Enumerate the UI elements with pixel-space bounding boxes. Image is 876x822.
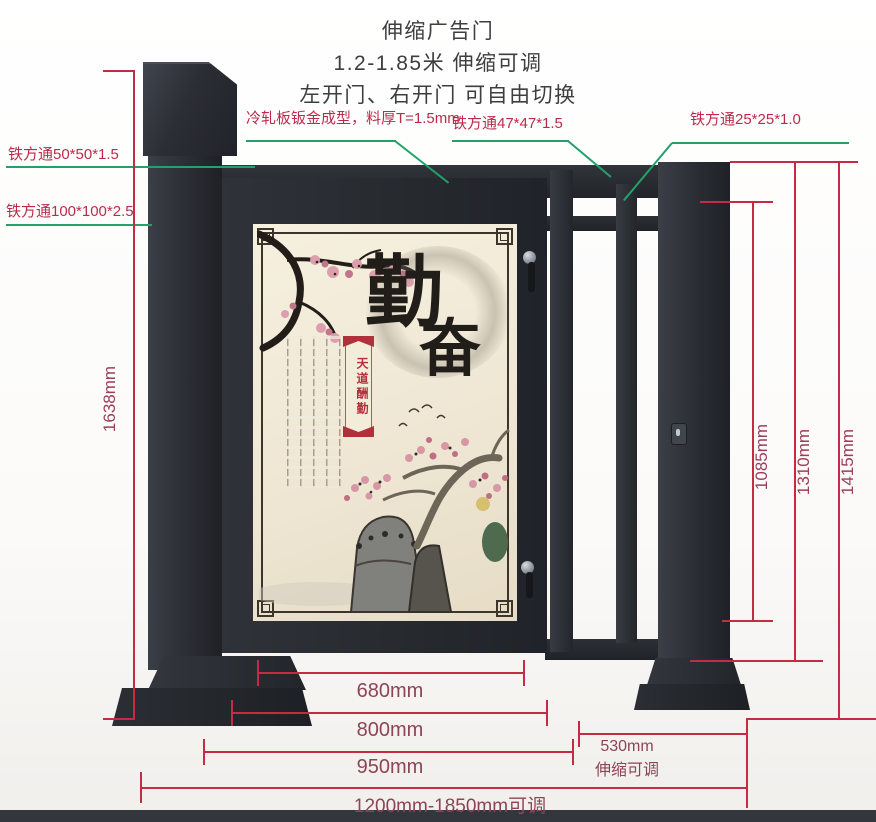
dim-1310-line xyxy=(794,161,796,660)
leader-tube-47-underline xyxy=(452,140,569,142)
dim-label-total-height: 1415mm xyxy=(838,422,858,502)
right-post xyxy=(658,162,730,664)
dim-label-extend-value: 530mm xyxy=(572,738,682,756)
dim-1310-bottom-tick xyxy=(690,660,823,662)
telescopic-bar-2 xyxy=(616,184,637,643)
leader-tube-25-underline xyxy=(672,142,849,144)
poster-corner-ornament-tr xyxy=(496,228,513,245)
post-keyhole xyxy=(671,423,687,445)
dim-800-line xyxy=(231,712,546,714)
subtitle-size-range: 1.2-1.85米 伸缩可调 xyxy=(0,47,876,77)
ink-painting-illustration xyxy=(259,396,511,614)
dim-label-poster-width: 680mm xyxy=(330,680,450,703)
subtitle-door-direction: 左开门、右开门 可自由切换 xyxy=(0,79,876,109)
dim-total-right-tick xyxy=(746,720,748,808)
dim-label-extend-note: 伸缩可调 xyxy=(572,756,682,780)
dim-950-line xyxy=(203,751,572,753)
dim-800-right-tick xyxy=(546,700,548,726)
dim-label-door-section-width: 950mm xyxy=(330,756,450,779)
dim-label-inner-height: 1085mm xyxy=(752,417,772,497)
left-post xyxy=(148,148,222,670)
calligraphy-fen: 奋 xyxy=(419,318,481,380)
right-post-foot-upper xyxy=(646,658,742,688)
gate-product-diagram: 伸缩广告门 1.2-1.85米 伸缩可调 左开门、右开门 可自由切换 xyxy=(0,0,876,822)
banner-top-cap xyxy=(343,336,374,347)
advert-poster: 勤 奋 天道酬勤 xyxy=(253,224,517,621)
door-lock-stem-bottom xyxy=(526,572,533,598)
advert-door-panel: 勤 奋 天道酬勤 xyxy=(222,178,547,653)
dim-1085-bottom-tick xyxy=(722,620,773,622)
telescopic-bar-1 xyxy=(550,170,573,652)
leader-cold-rolled-underline xyxy=(246,140,396,142)
dim-label-frame-height: 1310mm xyxy=(794,422,814,502)
dim-680-line xyxy=(257,672,523,674)
dim-label-total-width: 1200mm-1850mm可调 xyxy=(290,791,610,818)
callout-tube-100: 铁方通100*100*2.5 xyxy=(6,200,134,221)
dim-1085-line xyxy=(752,201,754,620)
leader-tube-100-underline xyxy=(6,224,152,226)
callout-tube-47: 铁方通47*47*1.5 xyxy=(452,112,563,133)
dim-680-right-tick xyxy=(523,660,525,686)
callout-tube-25: 铁方通25*25*1.0 xyxy=(690,108,801,129)
dim-1415-bottom-tick xyxy=(746,718,876,720)
dim-530-line xyxy=(578,733,747,735)
dim-1638-top-tick xyxy=(103,70,135,72)
dim-1085-top-tick xyxy=(700,201,773,203)
dim-1638-bottom-tick xyxy=(103,718,135,720)
dim-label-post-height: 1638mm xyxy=(100,359,120,439)
callout-tube-50: 铁方通50*50*1.5 xyxy=(8,143,119,164)
callout-cold-rolled: 冷轧板钣金成型，料厚T=1.5mm xyxy=(246,107,460,128)
dim-label-door-width: 800mm xyxy=(330,719,450,742)
door-lock-stem-top xyxy=(528,262,535,292)
page-title: 伸缩广告门 xyxy=(0,15,876,45)
dim-total-line xyxy=(140,787,747,789)
dim-1638-line xyxy=(133,70,135,718)
right-post-foot-base xyxy=(634,684,750,710)
leader-tube-50-underline xyxy=(6,166,255,168)
left-post-foot-base xyxy=(112,688,312,726)
motor-housing-box xyxy=(143,62,237,156)
